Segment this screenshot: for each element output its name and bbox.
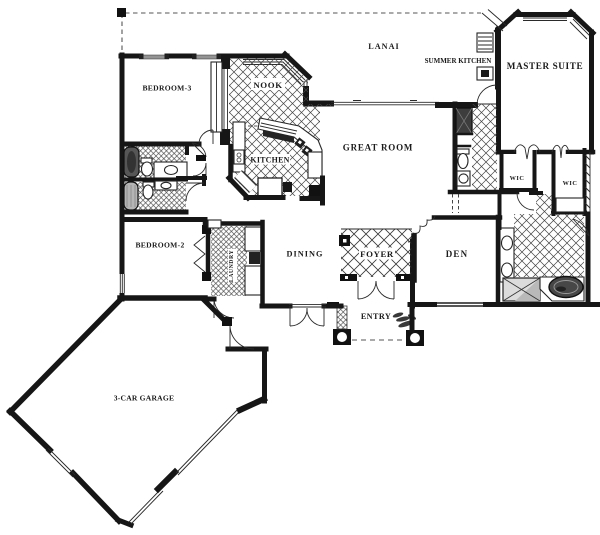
svg-text:WIC: WIC <box>563 180 578 187</box>
svg-text:BEDROOM-3: BEDROOM-3 <box>142 84 191 93</box>
svg-text:KITCHEN: KITCHEN <box>250 156 289 165</box>
svg-text:ENTRY: ENTRY <box>361 312 391 321</box>
svg-text:LANAI: LANAI <box>368 42 399 51</box>
svg-text:DINING: DINING <box>287 250 324 259</box>
svg-text:3-CAR GARAGE: 3-CAR GARAGE <box>114 394 174 403</box>
svg-text:DEN: DEN <box>446 249 469 259</box>
svg-text:SUMMER KITCHEN: SUMMER KITCHEN <box>425 57 492 65</box>
svg-text:GREAT ROOM: GREAT ROOM <box>343 143 413 153</box>
svg-text:BEDROOM-2: BEDROOM-2 <box>135 241 184 250</box>
svg-text:MASTER SUITE: MASTER SUITE <box>507 61 583 71</box>
svg-text:NOOK: NOOK <box>253 80 282 90</box>
svg-text:FOYER: FOYER <box>360 249 394 259</box>
svg-text:LAUNDRY: LAUNDRY <box>229 250 235 283</box>
svg-text:WIC: WIC <box>510 175 525 182</box>
